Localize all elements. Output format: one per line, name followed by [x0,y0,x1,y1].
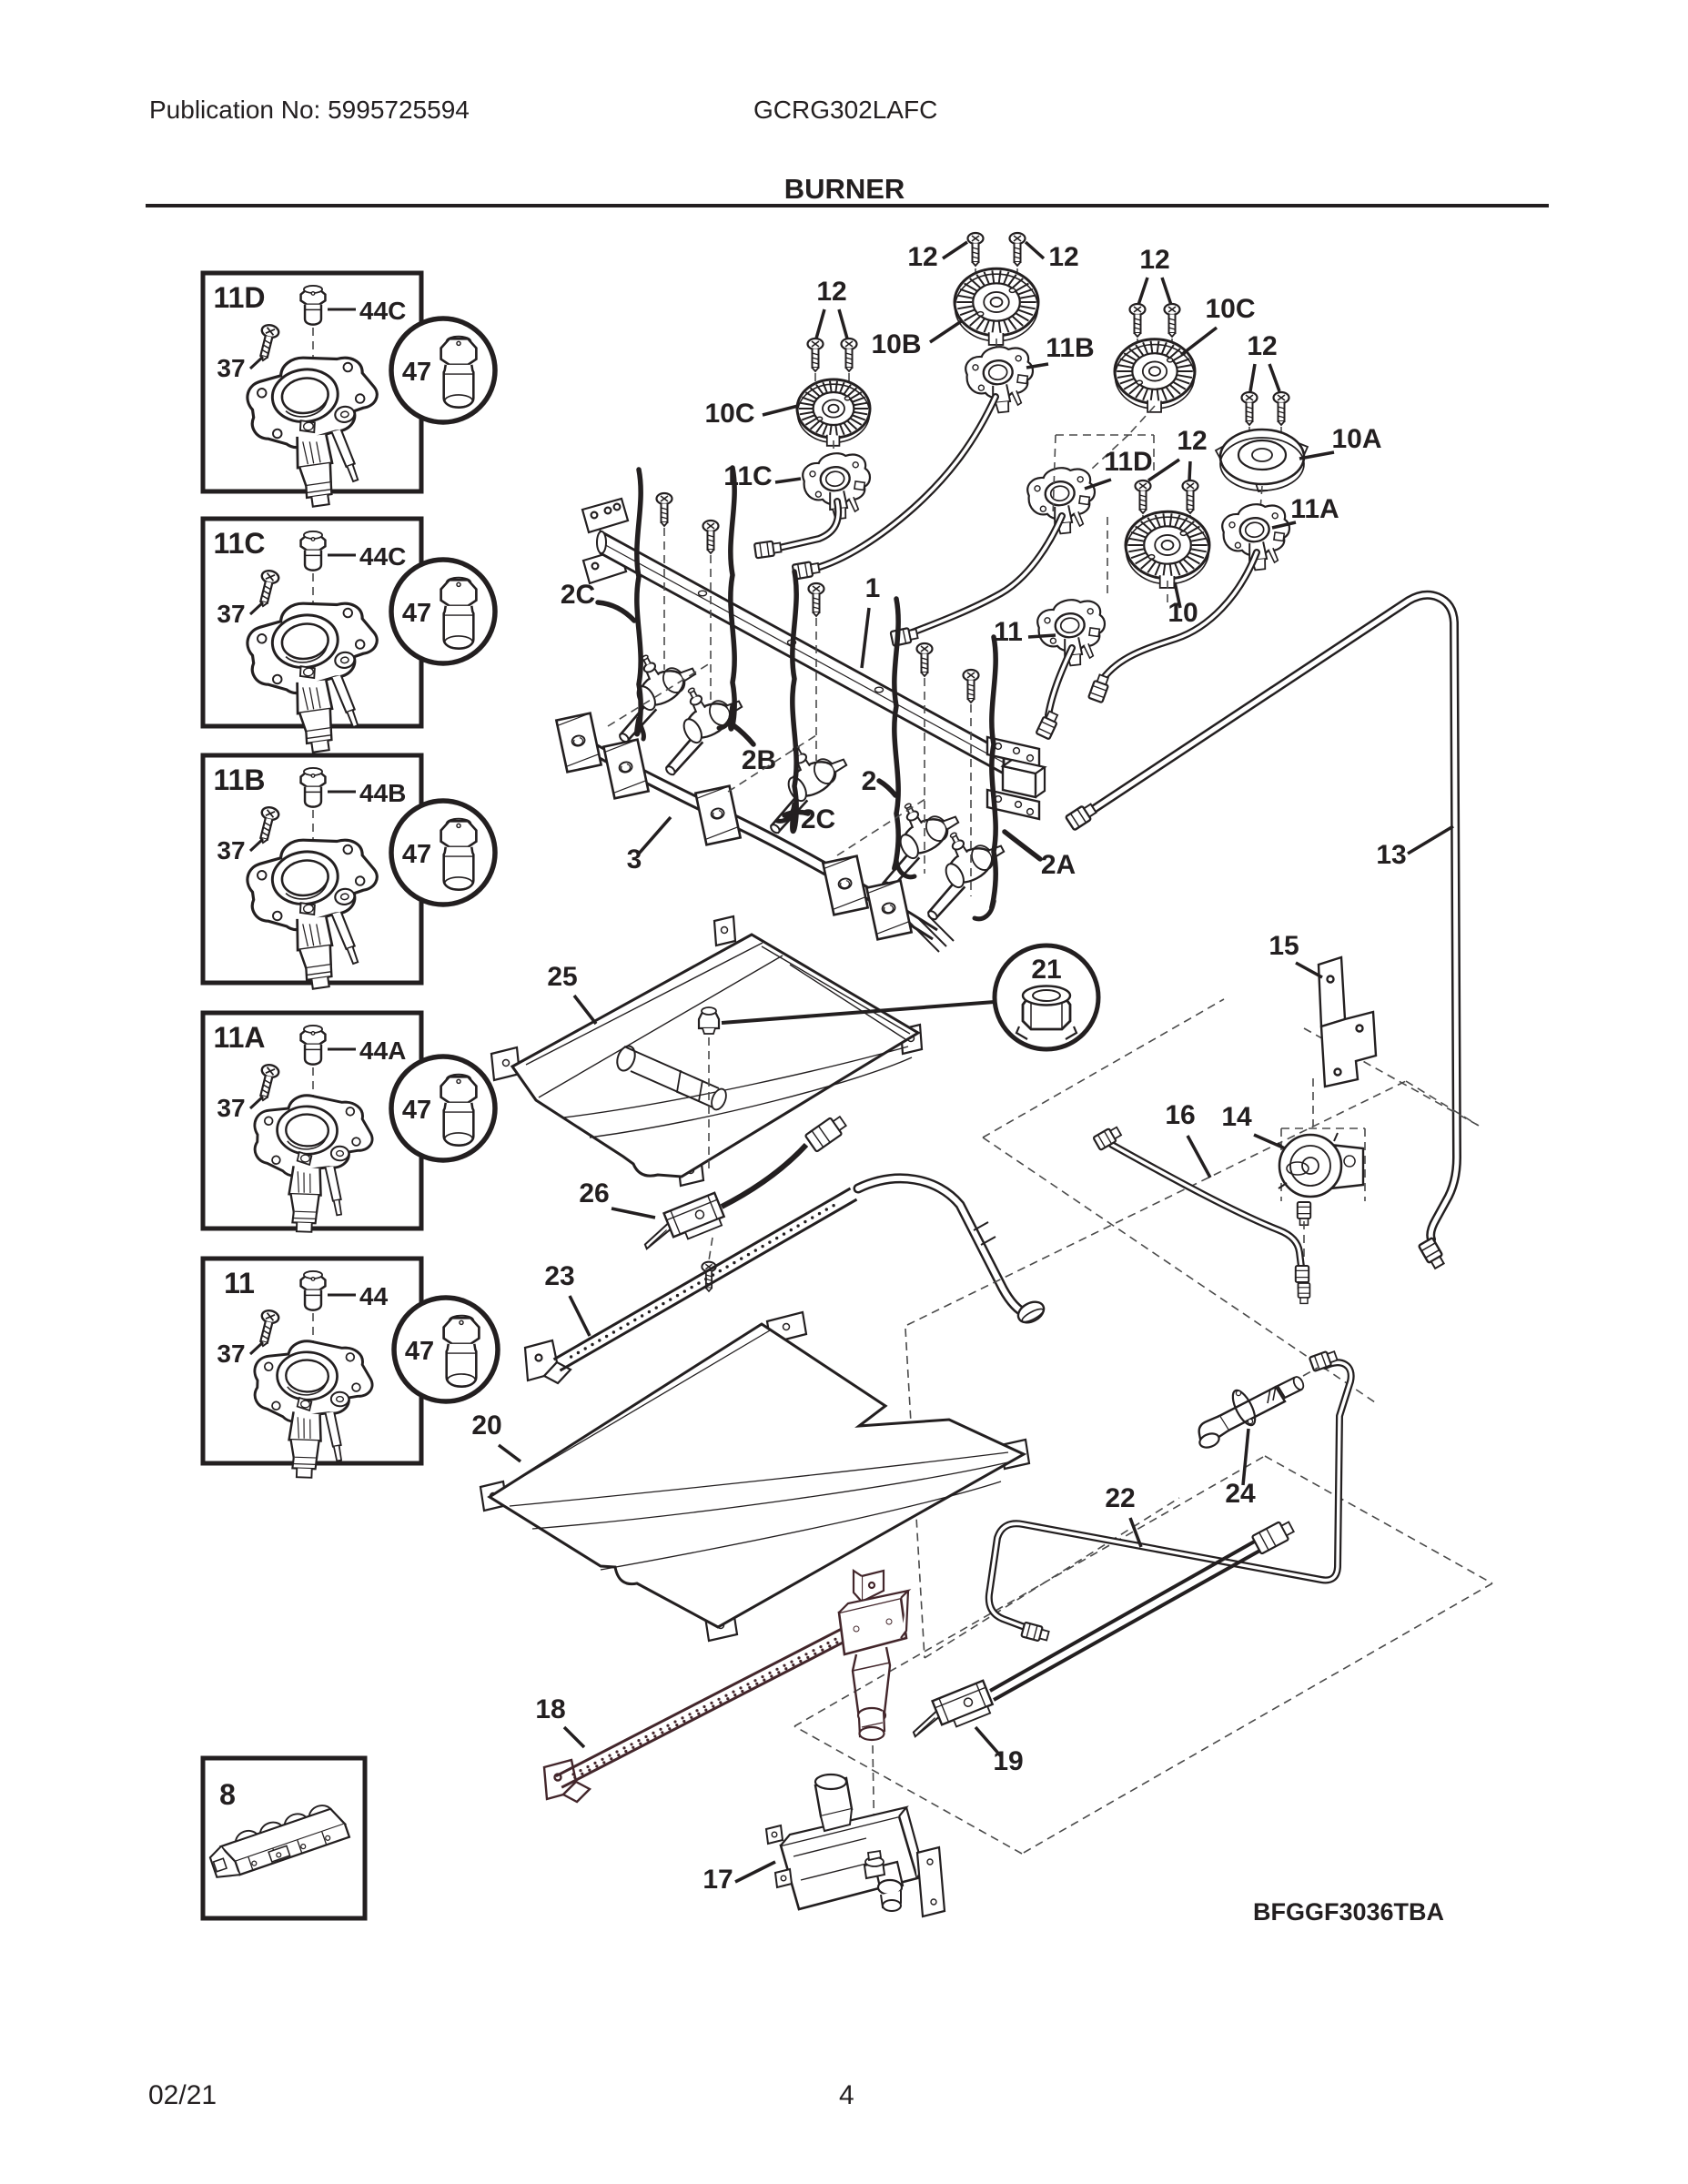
svg-text:14: 14 [1221,1102,1252,1132]
svg-text:16: 16 [1165,1100,1195,1130]
svg-text:Publication No: 5995725594: Publication No: 5995725594 [149,96,470,124]
svg-text:2C: 2C [561,580,595,610]
svg-text:23: 23 [544,1261,574,1291]
svg-text:11A: 11A [1290,494,1339,524]
svg-text:47: 47 [405,1337,434,1366]
svg-text:22: 22 [1105,1483,1135,1513]
svg-text:44C: 44C [359,542,406,571]
svg-text:10C: 10C [1205,294,1255,324]
svg-text:1: 1 [865,573,881,603]
svg-text:47: 47 [402,840,431,869]
svg-text:47: 47 [402,358,431,387]
svg-text:BFGGF3036TBA: BFGGF3036TBA [1253,1898,1444,1926]
svg-text:21: 21 [1031,955,1061,985]
svg-text:44: 44 [359,1282,389,1310]
svg-text:17: 17 [702,1865,733,1895]
svg-text:11C: 11C [214,527,266,560]
svg-text:44C: 44C [359,297,406,325]
svg-text:37: 37 [217,354,245,382]
svg-text:20: 20 [471,1410,501,1441]
svg-text:37: 37 [217,836,245,864]
svg-text:44A: 44A [359,1036,406,1065]
svg-text:BURNER: BURNER [784,173,905,205]
svg-text:2A: 2A [1041,850,1076,880]
svg-text:47: 47 [402,1096,431,1125]
svg-text:18: 18 [535,1694,565,1724]
svg-text:12: 12 [1177,426,1207,456]
svg-text:37: 37 [217,1094,245,1122]
svg-text:11D: 11D [1104,447,1152,477]
svg-text:26: 26 [579,1178,609,1208]
svg-text:11: 11 [994,617,1023,647]
svg-text:11: 11 [224,1267,255,1299]
svg-text:10A: 10A [1331,424,1381,454]
svg-text:4: 4 [839,2080,854,2110]
svg-text:GCRG302LAFC: GCRG302LAFC [753,96,937,124]
svg-text:12: 12 [1139,245,1169,275]
svg-text:12: 12 [907,242,937,272]
svg-text:13: 13 [1376,840,1406,870]
svg-text:11B: 11B [214,763,266,796]
svg-text:10C: 10C [704,399,754,429]
svg-text:47: 47 [402,599,431,628]
svg-text:3: 3 [627,844,642,875]
svg-text:37: 37 [217,600,245,628]
svg-text:12: 12 [1048,242,1078,272]
svg-text:24: 24 [1225,1479,1256,1509]
svg-text:44B: 44B [359,779,406,807]
svg-text:15: 15 [1269,931,1299,961]
svg-text:10B: 10B [871,329,921,359]
svg-text:11B: 11B [1046,333,1094,363]
svg-text:02/21: 02/21 [148,2080,217,2110]
svg-text:2B: 2B [742,745,776,775]
svg-text:2C: 2C [801,804,835,834]
svg-text:11D: 11D [214,281,266,314]
svg-text:37: 37 [217,1340,245,1368]
svg-text:10: 10 [1167,598,1198,628]
svg-text:2: 2 [862,766,877,796]
svg-text:8: 8 [219,1778,236,1811]
svg-text:25: 25 [547,962,577,992]
svg-text:12: 12 [1247,331,1277,361]
svg-text:11A: 11A [214,1021,266,1054]
svg-text:12: 12 [816,277,846,307]
